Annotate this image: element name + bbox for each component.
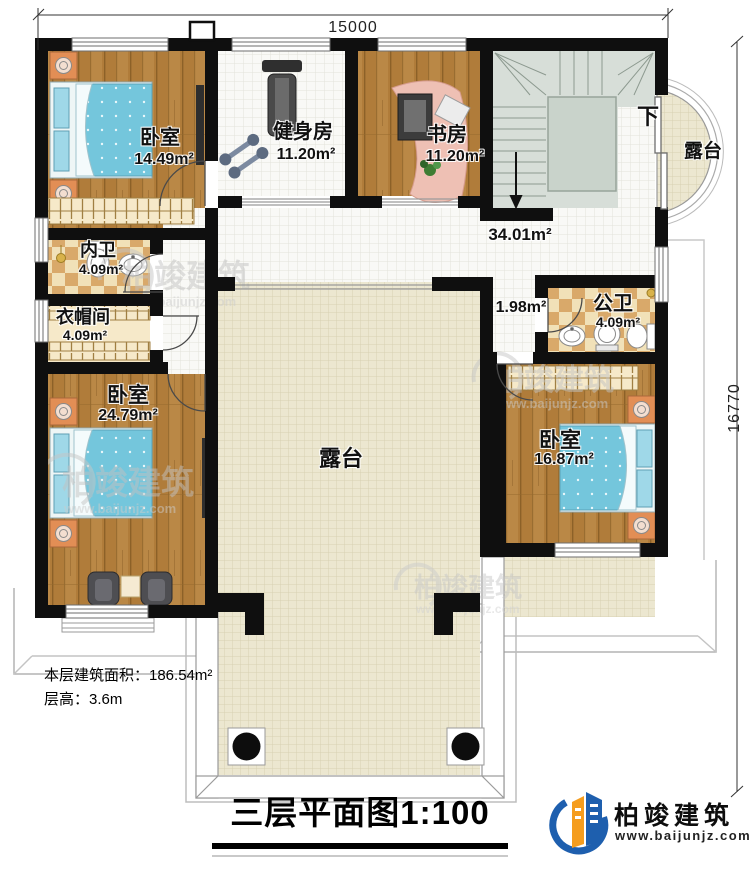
closet-name: 衣帽间	[56, 308, 110, 326]
floor-area-annotation: 本层建筑面积：186.54m²	[44, 668, 212, 683]
bedroom1-name: 卧室	[140, 128, 180, 148]
bedroom1-area: 14.49m²	[134, 152, 194, 168]
svg-text:柏竣建筑: 柏竣建筑	[62, 464, 194, 501]
dimension-right: 16770	[727, 378, 743, 438]
title-underline	[212, 843, 508, 849]
bedroom1-tv	[196, 85, 204, 165]
center-terrace-floor	[218, 282, 480, 775]
study-name: 书房	[427, 125, 467, 145]
porch-steps	[62, 618, 154, 632]
plan-title: 三层平面图1:100	[212, 786, 508, 834]
nook-floor	[493, 282, 535, 352]
title-underline-thin	[212, 855, 508, 857]
logo-company-name: 柏竣建筑	[614, 796, 734, 832]
public-bath-name: 公卫	[593, 294, 633, 314]
bedroom2-area: 24.79m²	[98, 408, 158, 424]
nook-area: 1.98m²	[496, 300, 547, 316]
floor-plan-page: 柏竣建筑 www.baijunjz.com 柏竣建筑 www.baijunjz.…	[0, 0, 750, 873]
gym-name: 健身房	[273, 122, 333, 142]
center-terrace-label: 露台	[319, 448, 363, 470]
floorplan-drawing: 柏竣建筑 www.baijunjz.com 柏竣建筑 www.baijunjz.…	[0, 0, 750, 873]
logo-website: www.baijunjz.com	[615, 828, 750, 843]
closet-area: 4.09m²	[63, 328, 107, 342]
title-block: 三层平面图1:100	[212, 786, 508, 857]
dimension-top: 15000	[328, 20, 378, 36]
svg-text:柏竣建筑: 柏竣建筑	[494, 363, 614, 397]
stair-landing	[548, 97, 616, 191]
study-area: 11.20m²	[426, 149, 485, 165]
floor-height-annotation: 层高：3.6m	[44, 692, 122, 707]
svg-text:www.baijunjz.com: www.baijunjz.com	[495, 396, 608, 411]
bedroom2-name: 卧室	[107, 385, 149, 406]
round-terrace-label: 露台	[684, 142, 722, 161]
bedroom3-area: 16.87m²	[534, 452, 594, 468]
logo-icon	[548, 788, 612, 856]
flue-box	[190, 22, 214, 40]
gym-area: 11.20m²	[277, 147, 336, 163]
public-bath-area: 4.09m²	[596, 315, 640, 329]
bedroom3-name: 卧室	[539, 430, 581, 451]
inner-bath-area: 4.09m²	[79, 262, 123, 276]
stairs-down-label: 下	[637, 106, 659, 128]
svg-text:www.baijunjz.com: www.baijunjz.com	[63, 501, 176, 516]
hall-area: 34.01m²	[488, 226, 551, 243]
inner-bath-name: 内卫	[80, 241, 116, 259]
